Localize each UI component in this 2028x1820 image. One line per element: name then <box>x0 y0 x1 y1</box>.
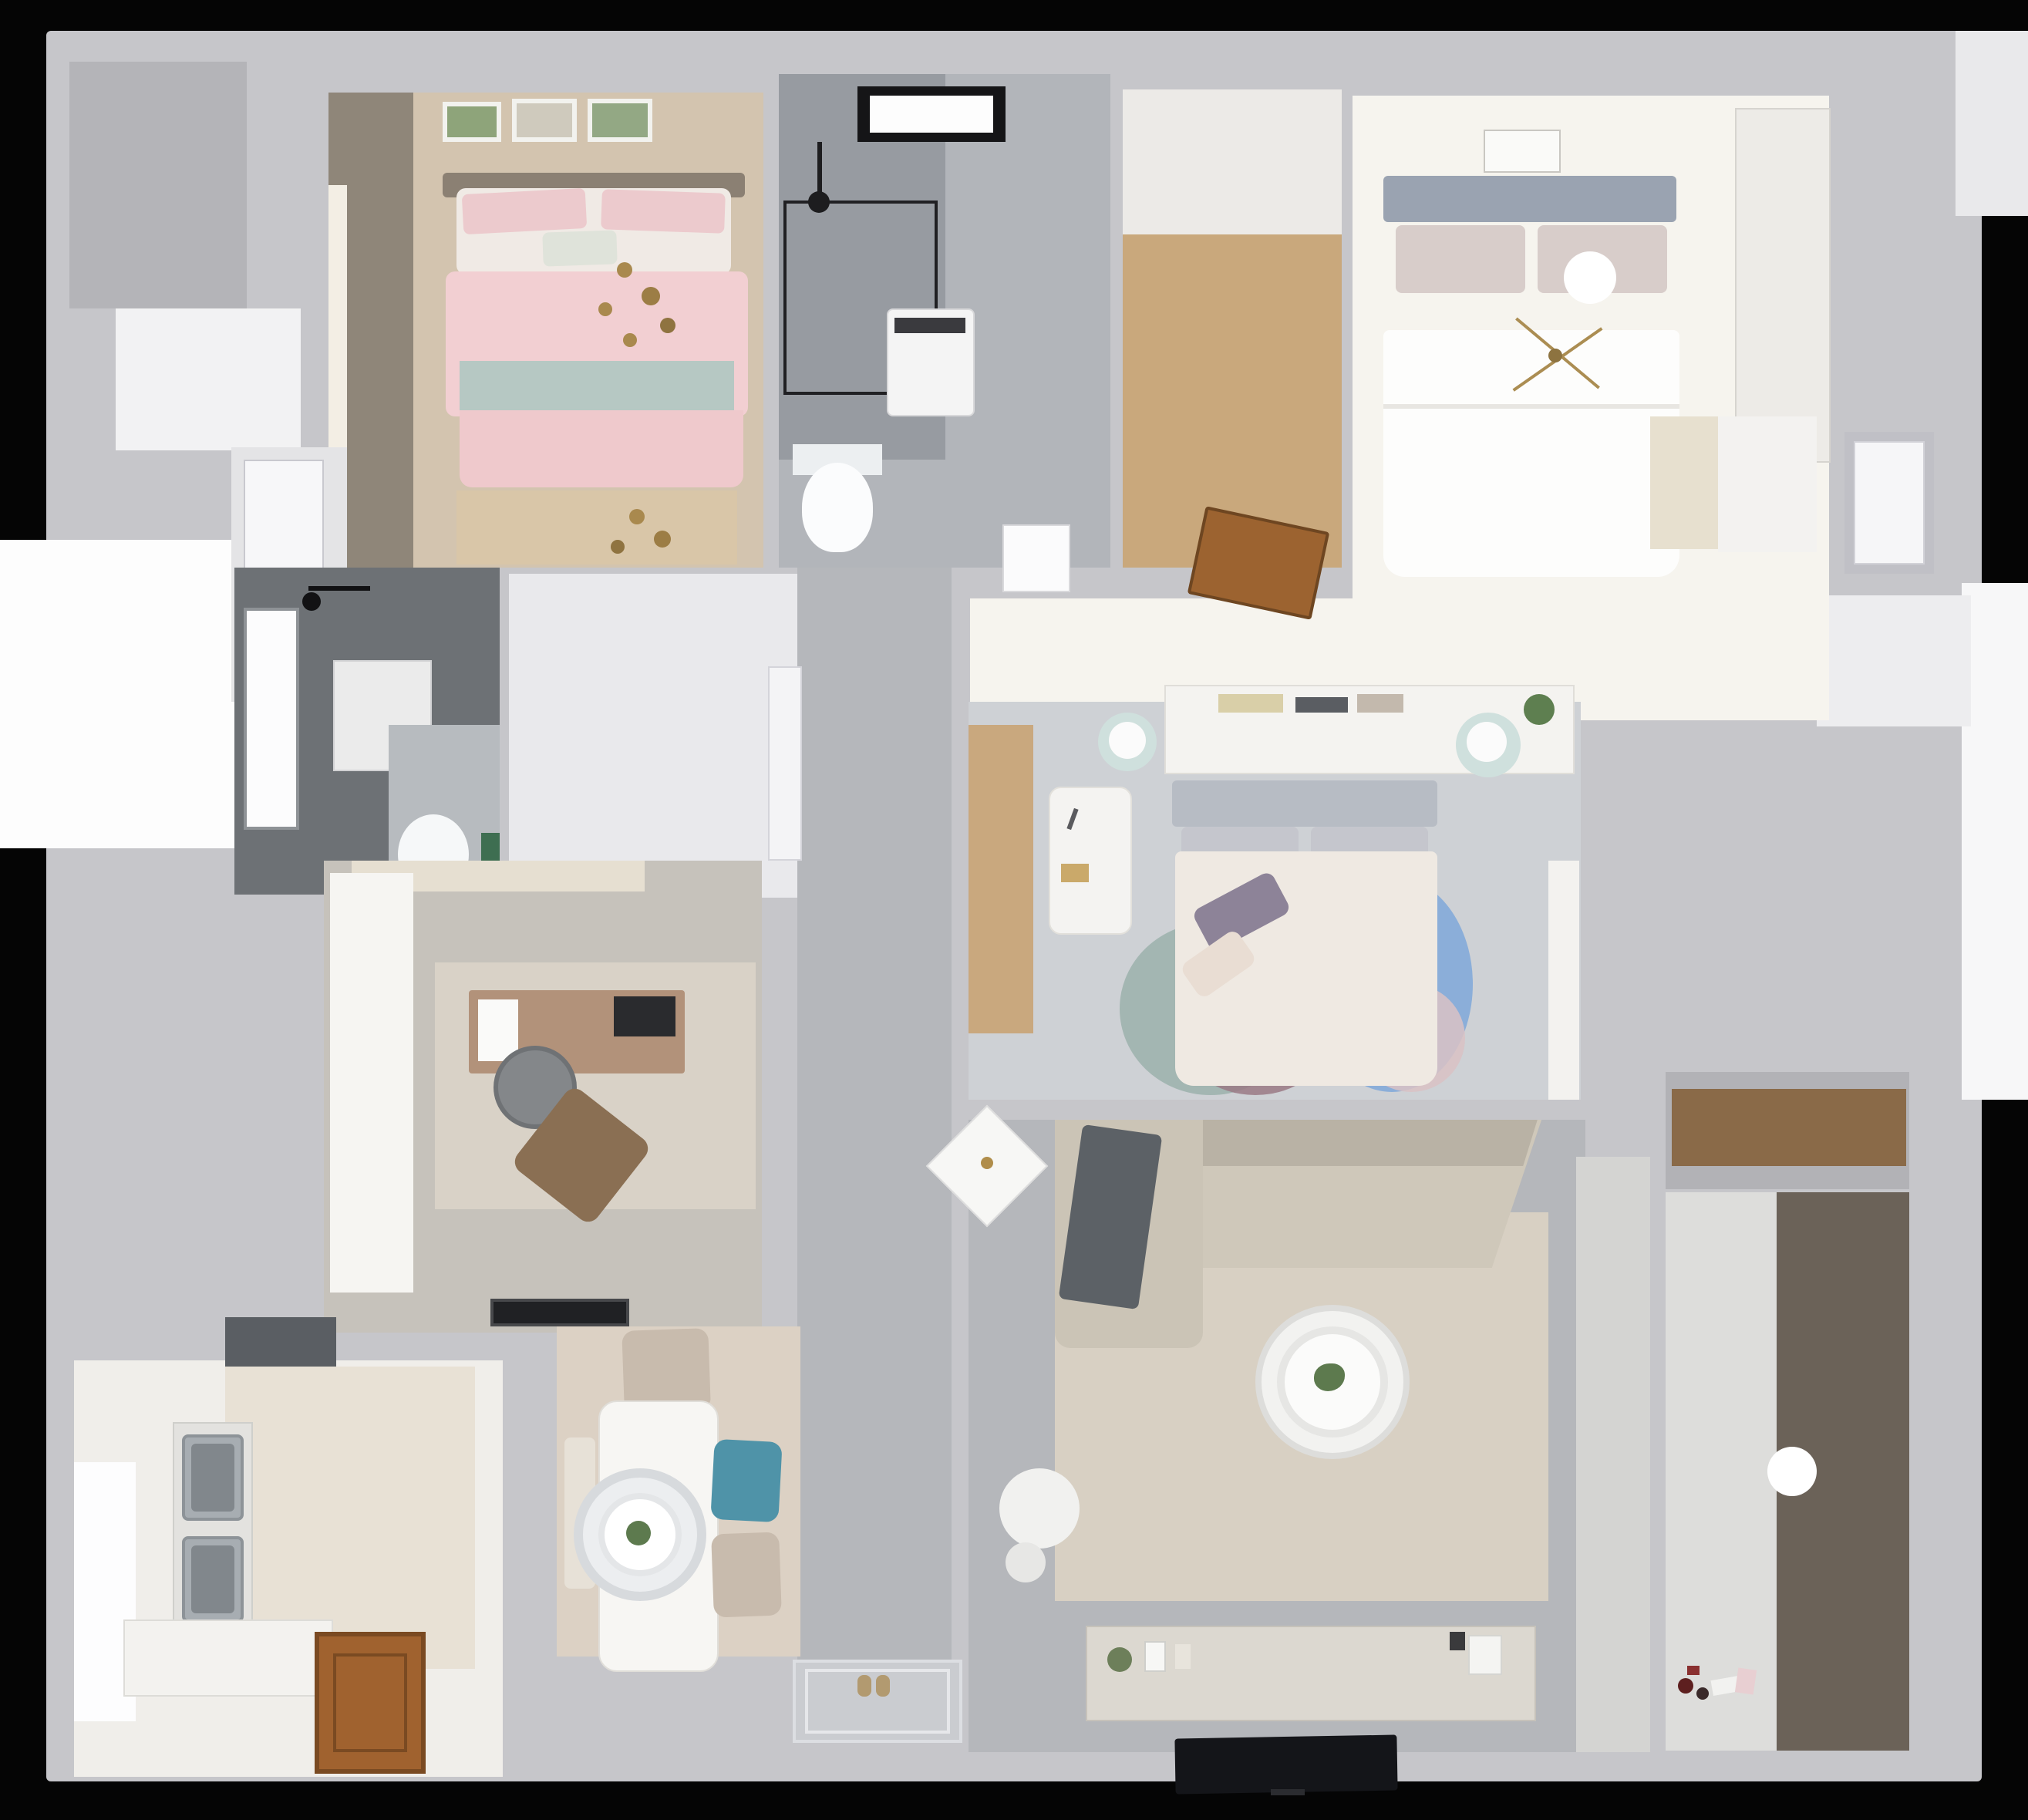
living-tv-stand <box>1271 1789 1305 1795</box>
bathroom1-shower-pipe <box>817 142 822 197</box>
office-floor-mat <box>490 1299 629 1326</box>
floorplan-render-stage <box>0 0 2028 1820</box>
bathroom2-shower-head <box>302 592 321 611</box>
balcony-light-sphere <box>1767 1447 1817 1496</box>
bedroom1-chandelier-globe <box>654 531 671 548</box>
bedroom2-curtain <box>1548 861 1579 1100</box>
entry-slipper-right <box>876 1675 890 1697</box>
living-tv-panel <box>1174 1734 1397 1794</box>
dining-pendant-sprig <box>626 1521 651 1545</box>
bedroom2-lamp-right <box>1467 722 1507 762</box>
balcony-toy <box>1696 1687 1709 1700</box>
bedroom1-window-light <box>328 185 347 463</box>
master-mosaic-strip <box>1650 416 1718 549</box>
console-deco-box <box>1468 1635 1502 1675</box>
kitchen-sink-upper-basin <box>191 1444 234 1512</box>
bedroom1-artframe-right <box>588 99 652 142</box>
bedroom2-headboard <box>1172 780 1437 827</box>
outside-patch-right-white <box>1962 583 2028 1100</box>
living-side-table-deco <box>981 1157 993 1169</box>
living-tile-strip <box>1576 1157 1650 1752</box>
outside-patch-top-left-gray <box>69 62 247 308</box>
bedroom1-cushion-sage <box>542 230 617 266</box>
bedroom2-lamp-left <box>1109 722 1146 759</box>
bedroom2-desk-item <box>1061 864 1089 882</box>
room-corridor-floor <box>797 568 952 1743</box>
console-deco-frame <box>1144 1641 1166 1672</box>
bedroom1-chandelier-globe <box>623 333 637 347</box>
balcony-toy <box>1687 1666 1700 1675</box>
dining-chair-top <box>622 1328 710 1408</box>
balcony-pink-bag <box>1735 1667 1757 1694</box>
master-pillow-left <box>1396 225 1525 293</box>
bedroom1-artframe-middle <box>512 99 577 142</box>
bedroom1-throw-teal <box>460 361 734 413</box>
bedroom1-chandelier-globe <box>617 262 632 278</box>
hall-floor-white <box>509 574 799 898</box>
bedroom1-duvet-pink-lower <box>460 410 743 487</box>
bathroom2-window <box>244 608 299 830</box>
bedroom2-desk <box>1049 787 1132 935</box>
entry-hall-white-floor <box>1817 595 1971 726</box>
ac-vent-grille <box>1002 524 1070 592</box>
master-wardrobe-louver <box>1735 108 1831 463</box>
bedroom1-chandelier-globe <box>611 540 625 554</box>
outside-patch-top-left-white <box>116 308 301 450</box>
kitchen-wood-door-panel <box>333 1653 407 1752</box>
master-chandelier-hub <box>1548 349 1562 362</box>
master-ceiling-light <box>1564 251 1616 304</box>
bedroom1-chandelier-globe <box>642 287 660 305</box>
entry-slipper-left <box>857 1675 871 1697</box>
closet-upper-wall <box>1123 89 1342 234</box>
bedroom2-shelf-plant <box>1524 694 1555 725</box>
bedroom2-shelf-book <box>1357 694 1403 713</box>
bedroom1-chandelier-globe <box>660 318 675 333</box>
living-floor-lamp <box>999 1468 1080 1549</box>
office-monitor <box>614 996 675 1036</box>
master-artwork <box>1484 130 1561 173</box>
bedroom1-chandelier-globe <box>629 509 645 524</box>
living-floor-lamp-base <box>1006 1542 1046 1582</box>
bathroom2-shower-arm <box>308 586 370 591</box>
balcony-toy <box>1678 1678 1693 1694</box>
bathroom1-shower-head <box>808 191 830 213</box>
bathroom1-toilet-bowl <box>802 463 873 552</box>
master-duvet-fold <box>1383 404 1679 409</box>
outside-patch-top-right <box>1956 31 2028 216</box>
bedroom2-shelf-book <box>1295 697 1348 713</box>
bedroom1-pillow-pink-left <box>462 188 588 234</box>
bedroom1-artframe-left <box>443 102 501 142</box>
console-deco-plant <box>1107 1647 1132 1672</box>
console-deco-vase <box>1175 1644 1191 1669</box>
balcony-wood-shelf <box>1672 1089 1906 1166</box>
kitchen-sink-lower-basin <box>191 1545 234 1613</box>
master-headboard <box>1383 176 1676 222</box>
bedroom1-chandelier-globe <box>598 302 612 316</box>
bedroom2-shelf-book <box>1218 694 1283 713</box>
kitchen-island-counter <box>123 1619 333 1697</box>
bedroom1-rug <box>456 490 737 565</box>
bathroom1-washer-controls <box>894 318 965 333</box>
master-duvet <box>1383 330 1679 577</box>
dining-chair-beige <box>711 1532 782 1617</box>
dining-chair-blue <box>710 1439 782 1522</box>
kitchen-range-hood <box>225 1317 336 1367</box>
apartment-floorplan <box>0 0 2028 1820</box>
bedroom2-wood-strip <box>969 725 1033 1033</box>
entry-curtain <box>1718 416 1817 552</box>
bathroom1-window-pane <box>870 96 993 133</box>
console-deco-speaker <box>1450 1632 1465 1650</box>
office-curtains <box>330 873 413 1293</box>
bedroom1-pillow-pink-right <box>601 189 726 234</box>
entry-door-leaf <box>1854 441 1925 565</box>
corridor-open-door <box>768 666 802 861</box>
